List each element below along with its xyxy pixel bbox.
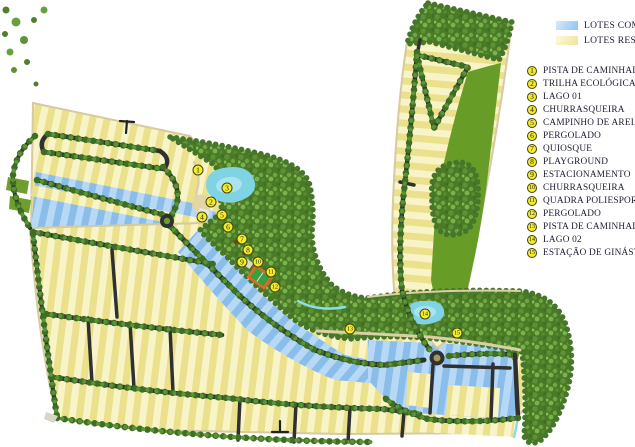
legend-item-4: 4CHURRASQUEIRA bbox=[527, 103, 635, 116]
legend-item-number: 5 bbox=[527, 118, 537, 128]
legend-item-number: 7 bbox=[527, 144, 537, 154]
legend-item-number: 6 bbox=[527, 131, 537, 141]
legend-item-number: 1 bbox=[527, 66, 537, 76]
legend-item-5: 5CAMPINHO DE AREIA bbox=[527, 116, 635, 129]
legend-item-label: PISTA DE CAMINHADA bbox=[543, 222, 635, 232]
legend-item-number: 8 bbox=[527, 157, 537, 167]
legend-item-number: 10 bbox=[527, 183, 537, 193]
legend-item-label: QUADRA POLIESPORT bbox=[543, 196, 635, 206]
commercial-lot-label: LOTES COME bbox=[584, 21, 635, 31]
legend-item-number: 3 bbox=[527, 92, 537, 102]
legend-item-label: CHURRASQUEIRA bbox=[543, 183, 625, 193]
legend-swatches: LOTES COME LOTES RESID bbox=[556, 18, 635, 48]
site-plan-page: 123456789101112131415 LOTES COME LOTES R… bbox=[0, 0, 635, 447]
legend-item-label: LAGO 01 bbox=[543, 92, 582, 102]
legend-item-label: CAMPINHO DE AREIA bbox=[543, 118, 635, 128]
legend: LOTES COME LOTES RESID 1PISTA DE CAMINHA… bbox=[0, 0, 635, 447]
residential-lot-swatch bbox=[556, 36, 578, 45]
legend-item-7: 7QUIOSQUE bbox=[527, 142, 635, 155]
legend-item-label: PERGOLADO bbox=[543, 209, 601, 219]
legend-item-number: 2 bbox=[527, 79, 537, 89]
legend-item-number: 9 bbox=[527, 170, 537, 180]
legend-items: 1PISTA DE CAMINHADA2TRILHA ECOLÓGICA3LAG… bbox=[527, 64, 635, 259]
legend-item-label: TRILHA ECOLÓGICA bbox=[543, 79, 635, 89]
legend-item-14: 14LAGO 02 bbox=[527, 233, 635, 246]
legend-item-number: 14 bbox=[527, 235, 537, 245]
legend-item-label: PISTA DE CAMINHADA bbox=[543, 66, 635, 76]
legend-item-10: 10CHURRASQUEIRA bbox=[527, 181, 635, 194]
legend-item-8: 8PLAYGROUND bbox=[527, 155, 635, 168]
legend-item-number: 12 bbox=[527, 209, 537, 219]
legend-item-2: 2TRILHA ECOLÓGICA bbox=[527, 77, 635, 90]
legend-item-3: 3LAGO 01 bbox=[527, 90, 635, 103]
legend-item-number: 15 bbox=[527, 248, 537, 258]
legend-item-label: PLAYGROUND bbox=[543, 157, 608, 167]
legend-row-commercial: LOTES COME bbox=[556, 18, 635, 33]
legend-item-label: ESTACIONAMENTO bbox=[543, 170, 631, 180]
legend-item-number: 11 bbox=[527, 196, 537, 206]
legend-item-label: PERGOLADO bbox=[543, 131, 601, 141]
legend-item-label: ESTAÇÃO DE GINÁSTIC bbox=[543, 248, 635, 258]
residential-lot-label: LOTES RESID bbox=[584, 36, 635, 46]
legend-item-label: CHURRASQUEIRA bbox=[543, 105, 625, 115]
legend-item-1: 1PISTA DE CAMINHADA bbox=[527, 64, 635, 77]
legend-item-label: QUIOSQUE bbox=[543, 144, 592, 154]
commercial-lot-swatch bbox=[556, 21, 578, 30]
legend-item-6: 6PERGOLADO bbox=[527, 129, 635, 142]
legend-item-15: 15ESTAÇÃO DE GINÁSTIC bbox=[527, 246, 635, 259]
legend-item-11: 11QUADRA POLIESPORT bbox=[527, 194, 635, 207]
legend-item-9: 9ESTACIONAMENTO bbox=[527, 168, 635, 181]
legend-item-number: 13 bbox=[527, 222, 537, 232]
legend-item-number: 4 bbox=[527, 105, 537, 115]
legend-item-13: 13PISTA DE CAMINHADA bbox=[527, 220, 635, 233]
legend-row-residential: LOTES RESID bbox=[556, 33, 635, 48]
legend-item-label: LAGO 02 bbox=[543, 235, 582, 245]
legend-item-12: 12PERGOLADO bbox=[527, 207, 635, 220]
